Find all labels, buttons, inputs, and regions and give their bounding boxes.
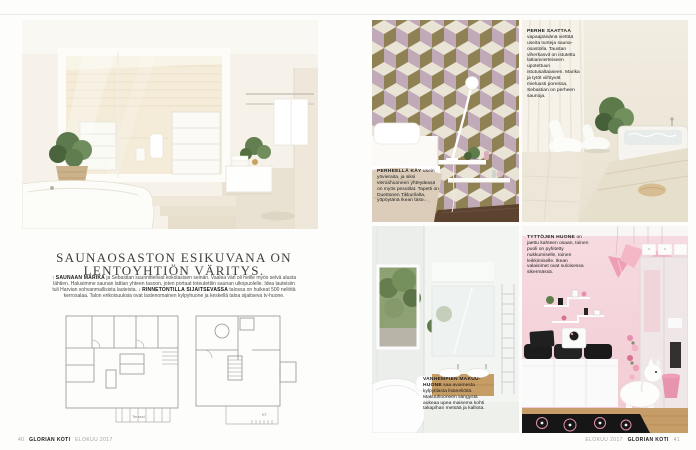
pink-bin bbox=[662, 376, 680, 398]
sauna-bathroom-photo bbox=[22, 20, 318, 229]
caption-girls-room: TYTTÖJEN HUONE on jaettu kahteen osaan, … bbox=[527, 235, 589, 276]
floor-mat bbox=[261, 212, 295, 221]
caption-spa-text: vapaapäivänä viettää useita tunteja saun… bbox=[527, 35, 580, 99]
magazine-brand-right: GLORIAN KOTI bbox=[628, 437, 669, 443]
floorplan-lower: Terassi bbox=[58, 310, 184, 430]
footer-right: ELOKUU 2017 GLORIAN KOTI 41 bbox=[585, 437, 680, 443]
magazine-spread: SAUNAOSASTON ESIKUVANA ON LENTOYHTIÖN VÄ… bbox=[0, 0, 696, 450]
caption-spa-lead: PERHE SAATTAA bbox=[527, 29, 571, 34]
floorplan-kt-label: KT bbox=[262, 412, 268, 417]
page-number-left: 40 bbox=[18, 437, 24, 443]
sauna-bathroom-illustration bbox=[22, 20, 318, 229]
issue-left: ELOKUU 2017 bbox=[75, 437, 112, 443]
vanity-mirror bbox=[432, 262, 494, 356]
caption-girls-room-text: on jaettu kahteen osaan, toinen puoli on… bbox=[527, 235, 588, 275]
caption-bedroom-text: usein yövieraita, ja siksi vierashuoneen… bbox=[377, 169, 439, 203]
intro-paragraph: ↑ SAUNAAN MARIKA ja Sebastian suunnittel… bbox=[50, 276, 298, 299]
jacuzzi-tub bbox=[22, 181, 154, 229]
page-number-right: 41 bbox=[674, 437, 680, 443]
caption-bedroom: PERHEELLÄ KÄY usein yövieraita, ja siksi… bbox=[377, 169, 441, 204]
window-with-trees bbox=[378, 266, 421, 348]
caption-girls-room-lead: TYTTÖJEN HUONE bbox=[527, 235, 575, 240]
straw-pouf bbox=[638, 184, 666, 197]
floorplan-upper: KT bbox=[190, 310, 302, 430]
rug-and-floor bbox=[522, 408, 688, 433]
footer-left: 40 GLORIAN KOTI ELOKUU 2017 bbox=[18, 437, 113, 443]
glass-sauna bbox=[58, 48, 230, 182]
floorplan-terrace-label: Terassi bbox=[132, 414, 145, 419]
issue-right: ELOKUU 2017 bbox=[585, 437, 622, 443]
caption-master-bedroom: VANHEMPIEN MAKUU­HUONE saa avoimesta kyl… bbox=[423, 377, 487, 412]
headline-line-1: SAUNAOSASTON ESIKUVANA ON bbox=[0, 251, 348, 265]
caption-bedroom-lead: PERHEELLÄ KÄY bbox=[377, 169, 422, 174]
page-top-edge bbox=[0, 14, 696, 15]
caption-spa: PERHE SAATTAA vapaapäivänä viettää useit… bbox=[527, 29, 581, 100]
magazine-brand-left: GLORIAN KOTI bbox=[29, 437, 70, 443]
